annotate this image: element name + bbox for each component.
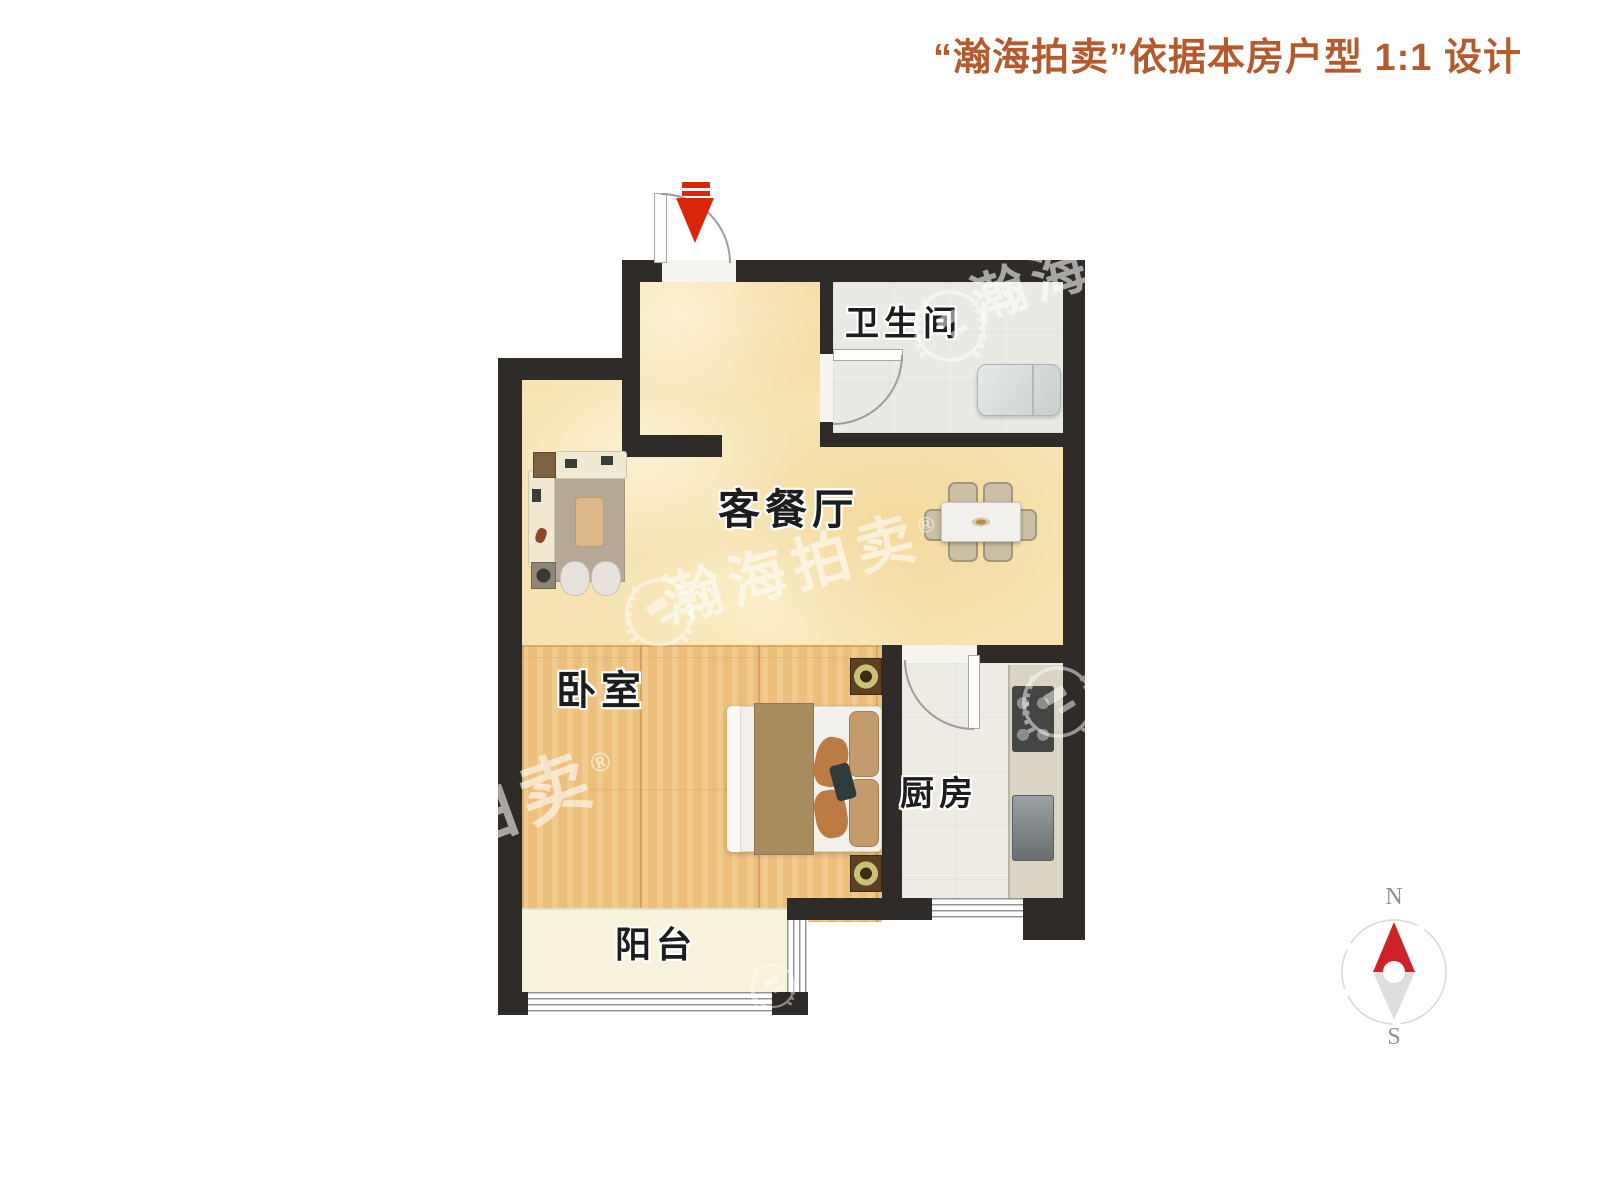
kitchen-door	[968, 655, 980, 729]
watermark-laurel-logo	[612, 565, 707, 660]
nightstand	[850, 658, 882, 695]
sofa-left-section	[528, 470, 555, 568]
kitchen-window	[932, 898, 1023, 920]
watermark-laurel-logo	[742, 955, 804, 1017]
entrance-door	[654, 193, 667, 263]
sofa-end-table	[531, 562, 556, 589]
balcony-window	[528, 992, 772, 1013]
wall	[820, 282, 833, 354]
sofa-side-table	[533, 452, 556, 478]
compass-south-label: S	[1379, 1024, 1409, 1051]
kitchen-door-opening	[902, 645, 977, 663]
bathroom-door	[833, 349, 903, 361]
room-label-kitchen: 厨房	[900, 766, 978, 815]
page-title: “瀚海拍卖”依据本房户型 1:1 设计	[933, 26, 1522, 81]
entry-corridor-floor	[640, 282, 820, 392]
compass-icon	[1330, 906, 1460, 1036]
pouf	[560, 561, 590, 596]
wall	[498, 358, 522, 1015]
coffee-table	[575, 497, 604, 547]
entrance-arrow-tail	[682, 182, 710, 196]
nightstand	[850, 855, 882, 892]
entrance-arrow-icon	[676, 198, 714, 243]
wall	[498, 992, 528, 1015]
watermark-laurel-logo	[900, 276, 1000, 376]
wall	[1063, 260, 1085, 940]
dining-table	[941, 502, 1021, 542]
sofa-cushion-accent	[532, 489, 541, 502]
wall	[787, 898, 932, 920]
sofa-cushion-accent	[565, 459, 577, 468]
floorplan-canvas: “瀚海拍卖”依据本房户型 1:1 设计	[0, 0, 1600, 1200]
kitchen-sink	[1012, 795, 1054, 861]
room-label-bedroom: 卧室	[556, 658, 646, 716]
watermark-laurel-logo	[1008, 652, 1108, 752]
entrance-opening	[662, 260, 736, 282]
wall	[820, 433, 1063, 447]
sofa-cushion-accent	[601, 456, 613, 465]
bed-footboard	[727, 706, 741, 852]
room-label-balcony: 阳台	[615, 916, 697, 968]
wall	[882, 645, 902, 920]
wall	[1023, 898, 1085, 940]
bed-runner	[754, 703, 814, 855]
bed-pillow	[849, 711, 879, 777]
bathroom-door-opening	[820, 354, 833, 422]
wall	[622, 435, 722, 457]
